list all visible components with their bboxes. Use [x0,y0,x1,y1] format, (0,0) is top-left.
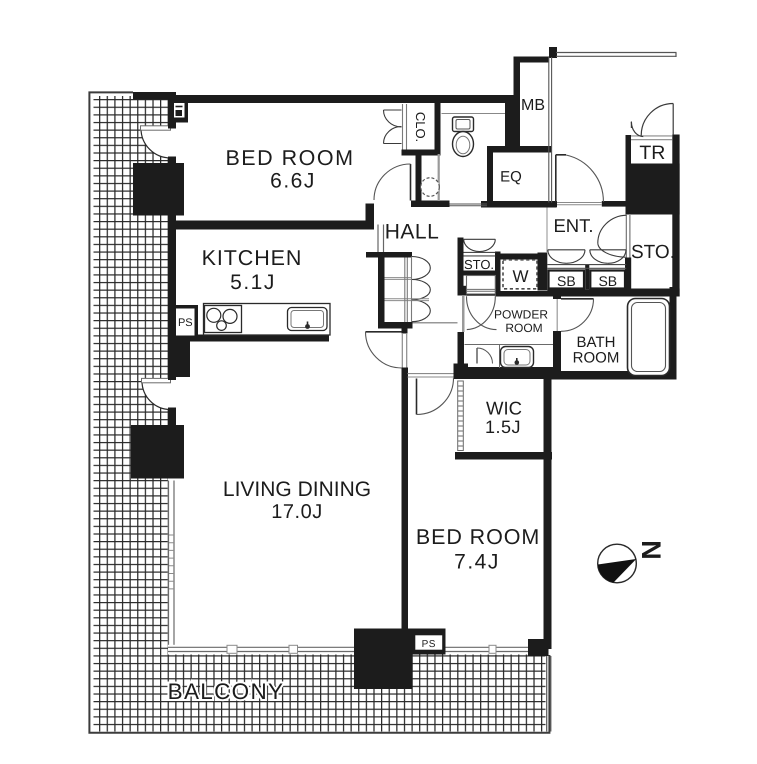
svg-text:N: N [636,540,666,560]
svg-text:PS: PS [422,639,436,650]
svg-text:BALCONY: BALCONY [168,679,285,704]
svg-text:ENT.: ENT. [553,215,593,236]
svg-text:5.1J: 5.1J [230,271,276,294]
svg-text:HALL: HALL [385,221,440,244]
svg-text:BATH: BATH [577,334,616,351]
svg-text:ROOM: ROOM [573,350,620,367]
svg-text:SB: SB [557,273,576,289]
svg-text:BED ROOM: BED ROOM [416,525,540,549]
svg-text:17.0J: 17.0J [271,501,322,523]
svg-text:SB: SB [598,273,617,289]
svg-text:6.6J: 6.6J [270,170,316,193]
svg-text:W: W [512,267,528,286]
svg-text:ROOM: ROOM [505,321,542,335]
svg-text:TR: TR [639,142,665,164]
svg-text:MB: MB [521,97,545,114]
svg-text:EQ: EQ [500,169,522,186]
svg-text:WIC: WIC [486,398,522,419]
svg-text:STO.: STO. [631,242,675,263]
svg-text:PS: PS [178,317,193,329]
svg-text:7.4J: 7.4J [454,551,500,574]
svg-text:POWDER: POWDER [494,308,548,322]
svg-text:BED ROOM: BED ROOM [225,146,354,170]
svg-text:1.5J: 1.5J [485,417,521,437]
svg-text:KITCHEN: KITCHEN [202,246,303,270]
svg-text:STO.: STO. [464,257,494,272]
svg-text:CLO.: CLO. [413,112,428,142]
svg-text:LIVING DINING: LIVING DINING [223,478,371,501]
